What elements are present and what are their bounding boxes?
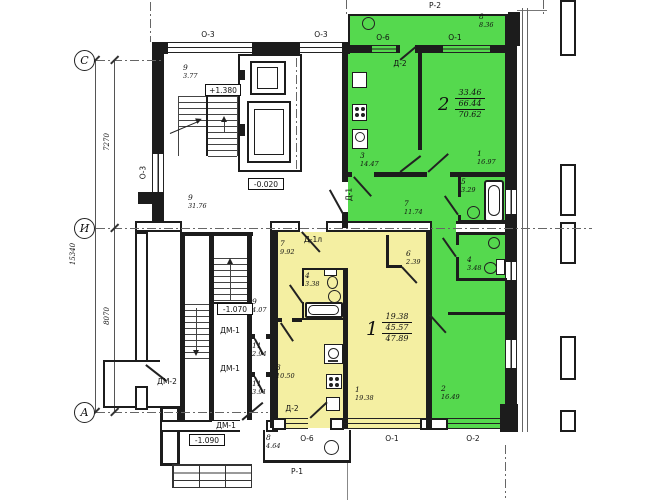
- room-area: 3.38: [305, 280, 319, 288]
- room-label-vestibule-1: 11 2.94: [252, 342, 266, 358]
- door-label-d2: Д-2: [280, 404, 304, 413]
- room-label-apt1-living: 1 19.38: [355, 386, 374, 402]
- room-number: 4: [305, 272, 319, 280]
- rail-label-p2: Р-2: [420, 1, 450, 10]
- door-label-dm1: ДМ-1: [216, 364, 244, 373]
- wall: [302, 268, 344, 270]
- room-label-apt1-closet: 6 2.39: [406, 250, 420, 266]
- room-number: 11: [252, 380, 266, 388]
- shaft-dashed-line: [296, 58, 297, 170]
- wall: [138, 192, 152, 204]
- elevation-mark-entry: -1.090: [189, 434, 225, 446]
- balcony-drain: [324, 440, 339, 455]
- down-arrow: [193, 350, 199, 356]
- wall: [348, 45, 372, 53]
- wall: [396, 45, 400, 53]
- wall: [270, 221, 300, 232]
- window-label-o6: О-6: [292, 434, 322, 443]
- fridge: [352, 72, 367, 88]
- wall: [180, 232, 253, 236]
- room-area: 3.77: [183, 72, 197, 80]
- window-o3: [300, 42, 342, 53]
- room-label-apt2-kitchen: 3 14.47: [360, 152, 379, 168]
- wall: [292, 318, 302, 322]
- entrance-steps: [172, 464, 252, 488]
- dimension-line-outer: [95, 60, 96, 412]
- stove: [326, 374, 342, 389]
- room-number: 9: [252, 298, 266, 306]
- door-label-dm2: ДМ-2: [152, 377, 182, 386]
- room-label-vestibule-2: 11 3.91: [252, 380, 266, 396]
- wall: [342, 212, 348, 228]
- extension-line: [150, 2, 151, 42]
- elevator-car-large-inner: [254, 109, 284, 155]
- room-label-stair-landing-lower: 9 4.07: [252, 298, 266, 314]
- apt1-usable-area: 45.57: [382, 322, 412, 333]
- window-o3: [168, 42, 252, 53]
- sink: [467, 206, 480, 219]
- window-o6: [372, 45, 396, 53]
- room-area: 16.97: [477, 158, 496, 166]
- room-number: 11: [252, 342, 266, 350]
- room-number: 1: [477, 150, 496, 158]
- adjacent-wall-panel: [560, 0, 576, 56]
- wall: [135, 232, 148, 362]
- room-label-apt1-bath: 4 3.38: [305, 272, 319, 288]
- apt1-total-area: 47.89: [382, 333, 412, 344]
- room-number: 5: [461, 178, 475, 186]
- stove-burner: [361, 113, 365, 117]
- room-area: 11.74: [404, 208, 423, 216]
- apt1-living-area: 19.38: [382, 312, 412, 322]
- door-label-dm1: ДМ-1: [216, 326, 244, 335]
- axis-line-a: [96, 412, 268, 413]
- room-area: 2.94: [252, 350, 266, 358]
- elevation-mark-ground: -0.020: [248, 178, 284, 190]
- up-arrow: [227, 258, 233, 264]
- stove: [352, 104, 367, 121]
- balcony-rail: [263, 460, 351, 463]
- room-area: 2.39: [406, 258, 420, 266]
- stove-burner: [329, 383, 333, 387]
- room-label-apt1-hall: 7 9.92: [280, 240, 294, 256]
- wall: [135, 386, 148, 410]
- wall: [386, 265, 402, 268]
- floor-plan: 7270 8070 15340 С И А О-3 О-3 О-3 9 3.77…: [0, 0, 650, 500]
- room-area: 8.36: [479, 21, 493, 29]
- wall: [135, 221, 182, 232]
- room-area: 16.49: [441, 393, 460, 401]
- facade-line: [527, 8, 528, 432]
- wall: [386, 235, 389, 267]
- wall: [456, 235, 459, 245]
- balcony-drain: [362, 17, 375, 30]
- room-number: 3: [276, 364, 295, 372]
- room-area: 3.29: [461, 186, 475, 194]
- wall: [152, 54, 164, 154]
- room-number: 4: [467, 256, 481, 264]
- room-label-apt2-bedroom: 1 16.97: [477, 150, 496, 166]
- window: [505, 262, 517, 280]
- room-label-apt2-living: 2 16.49: [441, 385, 460, 401]
- window: [505, 190, 517, 214]
- room-number: 2: [441, 385, 460, 393]
- room-area: 14.47: [360, 160, 379, 168]
- wall: [505, 280, 517, 340]
- wall-corner: [160, 406, 180, 466]
- kitchen-sink-bowl: [328, 348, 339, 359]
- bathtub-inner: [308, 305, 339, 315]
- rail-label-p1: Р-1: [282, 467, 312, 476]
- stair-edge: [237, 96, 238, 156]
- wall: [430, 418, 448, 430]
- arrow-line: [224, 122, 225, 132]
- wall: [348, 172, 352, 177]
- room-area: 3.91: [252, 388, 266, 396]
- dim-15340: 15340: [69, 234, 77, 274]
- balcony-rail: [263, 430, 265, 462]
- room-number: 1: [355, 386, 374, 394]
- window-o1: [344, 418, 420, 429]
- toilet-tank: [324, 269, 337, 276]
- room-label-apt1-kitchen: 3 10.50: [276, 364, 295, 380]
- window-label-o1: О-1: [377, 434, 407, 443]
- facade-line: [522, 8, 523, 432]
- room-label-apt2-bath: 5 3.29: [461, 178, 475, 194]
- axis-line-i: [96, 228, 592, 229]
- room-area: 10.50: [276, 372, 295, 380]
- room-label-apt1-balcony: 8 4.64: [266, 434, 280, 450]
- room-number: 8: [266, 434, 280, 442]
- room-area: 19.38: [355, 394, 374, 402]
- axis-bubble-i: И: [74, 218, 95, 239]
- room-area: 3.48: [467, 264, 481, 272]
- wall: [343, 268, 348, 428]
- dim-7270: 7270: [103, 122, 111, 162]
- axis-bubble-a: А: [74, 402, 95, 423]
- wall: [152, 42, 168, 54]
- room-number: 8: [479, 13, 493, 21]
- apt1-area-table: 19.38 45.57 47.89: [382, 312, 412, 344]
- door-label-d2: Д-2: [388, 59, 412, 68]
- toilet-bowl: [484, 262, 497, 274]
- kitchen-cabinet: [326, 397, 340, 411]
- wall: [272, 418, 286, 430]
- up-arrow: [221, 116, 227, 122]
- room-label-stair-landing: 9 3.77: [183, 64, 197, 80]
- window-label-o3: О-3: [178, 30, 238, 39]
- wall: [505, 368, 517, 430]
- elevation-mark-upper: +1.380: [205, 84, 241, 96]
- room-area: 9.92: [280, 248, 294, 256]
- room-label-apt2-wc: 4 3.48: [467, 256, 481, 272]
- window-label-o3: О-3: [139, 158, 148, 188]
- axis-bubble-c: С: [74, 50, 95, 71]
- apt2-total-area: 70.62: [455, 109, 485, 120]
- room-label-apt2-hall: 7 11.74: [404, 200, 423, 216]
- extension-line: [543, 0, 544, 14]
- wall: [456, 278, 507, 281]
- stove-burner: [361, 107, 365, 111]
- wall: [426, 232, 432, 428]
- wall: [342, 52, 348, 182]
- window-label-o6: О-6: [368, 33, 398, 42]
- window-label-o2: О-2: [458, 434, 488, 443]
- room-label-corridor: 9 31.76: [188, 194, 207, 210]
- sink: [488, 237, 500, 249]
- room-number: 9: [188, 194, 207, 202]
- wall: [456, 257, 459, 280]
- room-number: 9: [183, 64, 197, 72]
- wall: [418, 52, 422, 150]
- adjacent-wall-panel: [560, 410, 576, 432]
- apt2-usable-area: 66.44: [455, 98, 485, 109]
- apt2-number: 2: [438, 94, 449, 115]
- wall: [330, 418, 344, 430]
- room-area: 4.07: [252, 306, 266, 314]
- extension-line: [346, 0, 347, 14]
- adjacent-wall-panel: [560, 164, 576, 216]
- stove-burner: [329, 377, 333, 381]
- wall: [302, 302, 304, 318]
- room-number: 7: [280, 240, 294, 248]
- kitchen-sink-drainer: [328, 360, 338, 362]
- toilet-bowl: [327, 276, 338, 289]
- stove-burner: [355, 113, 359, 117]
- stove-burner: [335, 377, 339, 381]
- window: [505, 340, 517, 368]
- apt1-number: 1: [366, 318, 378, 340]
- wall: [302, 268, 304, 286]
- dim-8070: 8070: [103, 296, 111, 336]
- room-number: 6: [406, 250, 420, 258]
- wall: [374, 172, 427, 177]
- wall: [270, 232, 278, 428]
- room-number: 3: [360, 152, 379, 160]
- window-label-o1: О-1: [440, 33, 470, 42]
- apt2-fill-upper: [348, 45, 505, 228]
- wall: [302, 318, 344, 320]
- arrow-line: [196, 308, 197, 352]
- stove-burner: [355, 107, 359, 111]
- wall: [505, 214, 517, 262]
- elevator-door-jamb: [238, 124, 245, 136]
- wall: [448, 312, 507, 315]
- extension-line: [505, 445, 506, 498]
- adjacent-wall-panel: [560, 336, 576, 380]
- elevator-door-jamb: [238, 70, 245, 80]
- kitchen-sink-bowl: [355, 132, 365, 142]
- toilet-tank: [496, 259, 505, 275]
- window-o3: [152, 154, 164, 192]
- apt2-area-table: 33.46 66.44 70.62: [455, 88, 485, 120]
- door-leaf-d1: [329, 189, 343, 213]
- axis-line-c: [96, 60, 164, 61]
- wall: [505, 14, 517, 190]
- apt2-living-area: 33.46: [455, 88, 485, 98]
- sink: [328, 290, 341, 303]
- room-number: 7: [404, 200, 423, 208]
- wall: [252, 42, 300, 54]
- stove-burner: [335, 383, 339, 387]
- room-area: 4.64: [266, 442, 280, 450]
- window-o1: [443, 45, 490, 53]
- arrow-line: [230, 264, 231, 300]
- stair-treads: [208, 96, 237, 157]
- window-label-o3: О-3: [291, 30, 351, 39]
- window-o6: [286, 418, 308, 429]
- door-label-d1l: Д-1л: [296, 235, 330, 244]
- elevation-mark-lower: -1.070: [217, 303, 253, 315]
- elevator-car-small-inner: [257, 67, 278, 89]
- room-label-apt2-balcony: 8 8.36: [479, 13, 493, 29]
- door-label-d1: Д-1: [345, 182, 354, 208]
- bathtub-inner: [488, 185, 500, 216]
- room-area: 31.76: [188, 202, 207, 210]
- balcony-rail: [349, 430, 351, 462]
- extension-line: [347, 463, 348, 500]
- door-label-dm1: ДМ-1: [212, 421, 240, 430]
